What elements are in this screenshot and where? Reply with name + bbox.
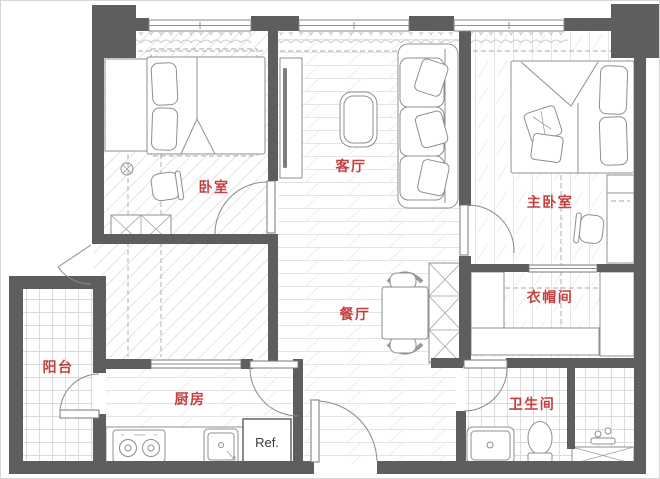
desk-top: [607, 175, 634, 263]
stove: [113, 430, 165, 462]
door-leaf: [250, 361, 298, 368]
floor-plan-drawing: Ref.: [1, 1, 659, 478]
entry-floor: [303, 358, 456, 464]
bed-double: [147, 57, 265, 154]
chair-seat: [579, 214, 605, 244]
wall-balcony-right-lower: [93, 414, 106, 464]
balcony-label: 阳台: [43, 359, 74, 375]
door-leaf: [460, 205, 468, 255]
dining-room-label: 餐厅: [339, 306, 371, 322]
wall-balcony-left: [9, 276, 23, 474]
bathroom-label: 卫生间: [509, 396, 556, 412]
door-leaf: [60, 410, 99, 418]
wall-stub-middle: [268, 244, 278, 364]
door-leaf: [464, 360, 507, 368]
pillow: [151, 62, 178, 105]
wall-closet-top-left: [471, 264, 529, 272]
wall-pillar-top-left: [92, 5, 136, 58]
wardrobe: [105, 59, 149, 151]
dining-tall-cabinet: [429, 263, 461, 363]
closet-label: 衣帽间: [527, 289, 574, 305]
wall-kitchen-top-left: [106, 359, 151, 369]
living-room-label: 客厅: [335, 158, 367, 174]
faucet-knob: [595, 431, 601, 437]
balcony-floor: [23, 289, 93, 461]
toilet: [528, 422, 552, 464]
door-leaf: [267, 181, 275, 233]
wall-bathroom-top-left: [431, 358, 463, 368]
wall-closet-left: [459, 256, 471, 366]
sink-outer: [204, 429, 238, 464]
refrigerator-label: Ref.: [255, 435, 279, 450]
wall-pillar-top-right: [611, 4, 659, 58]
pillow: [599, 117, 628, 166]
refrigerator: Ref.: [243, 419, 291, 464]
faucet-base: [591, 438, 615, 444]
wall-post: [268, 234, 278, 244]
window-living: [299, 20, 409, 31]
wall-bedroom-living: [268, 29, 278, 181]
wall-balcony-top: [9, 276, 106, 289]
pillow: [151, 108, 177, 151]
wall-right: [634, 56, 646, 466]
curtains: [119, 32, 568, 43]
dining-table: [382, 287, 428, 339]
pillow: [599, 66, 628, 115]
flex-area-floor: [93, 244, 268, 359]
wall-living-master: [459, 29, 471, 206]
master-bedroom-label: 主卧室: [527, 194, 574, 210]
windows: [149, 20, 564, 31]
wall-bathroom-partition: [567, 366, 575, 449]
bedroom-chair: [150, 171, 184, 202]
shower-tray: [467, 427, 514, 464]
wall-balcony-right-upper: [93, 276, 106, 373]
coffee-table: [340, 92, 377, 147]
shower-outer: [467, 427, 514, 464]
clothes-rack: [600, 272, 634, 356]
wall-bottom-right: [377, 461, 646, 474]
wall-bottom-left: [9, 461, 314, 474]
bedroom-label: 卧室: [199, 179, 230, 195]
curtain-master: [438, 32, 568, 43]
master-desk: [607, 175, 634, 263]
curtain-living: [269, 32, 434, 43]
faucet-spout: [605, 428, 611, 434]
wall-closet-top-right: [597, 264, 634, 272]
wall-bathroom-left: [456, 411, 466, 466]
toilet-bowl: [528, 422, 552, 455]
tv-screen: [283, 68, 287, 168]
wall-kitchen-entry: [293, 359, 303, 461]
wall-segment: [409, 16, 454, 31]
wall-segment: [251, 16, 299, 31]
curtain-bedroom: [119, 32, 251, 43]
clothes-rack: [471, 328, 599, 355]
sofa: [398, 44, 458, 208]
window-bedroom: [149, 20, 251, 31]
master-chair: [573, 213, 604, 244]
floor-plan-canvas: Ref.: [0, 0, 660, 479]
wall-left: [92, 56, 104, 236]
window-master: [454, 20, 564, 31]
master-bed: [511, 61, 634, 173]
wall-segment: [136, 18, 149, 31]
wall-bathroom-top: [506, 358, 646, 368]
door-leaf-line: [58, 245, 91, 267]
kitchen-sink: [204, 429, 238, 464]
kitchen-label: 厨房: [175, 391, 206, 407]
wall-segment: [564, 18, 614, 31]
door-leaf: [311, 400, 319, 462]
throw-pillow: [530, 133, 563, 163]
clothes-rack: [471, 272, 504, 328]
wall-bedroom-bottom: [92, 234, 275, 244]
